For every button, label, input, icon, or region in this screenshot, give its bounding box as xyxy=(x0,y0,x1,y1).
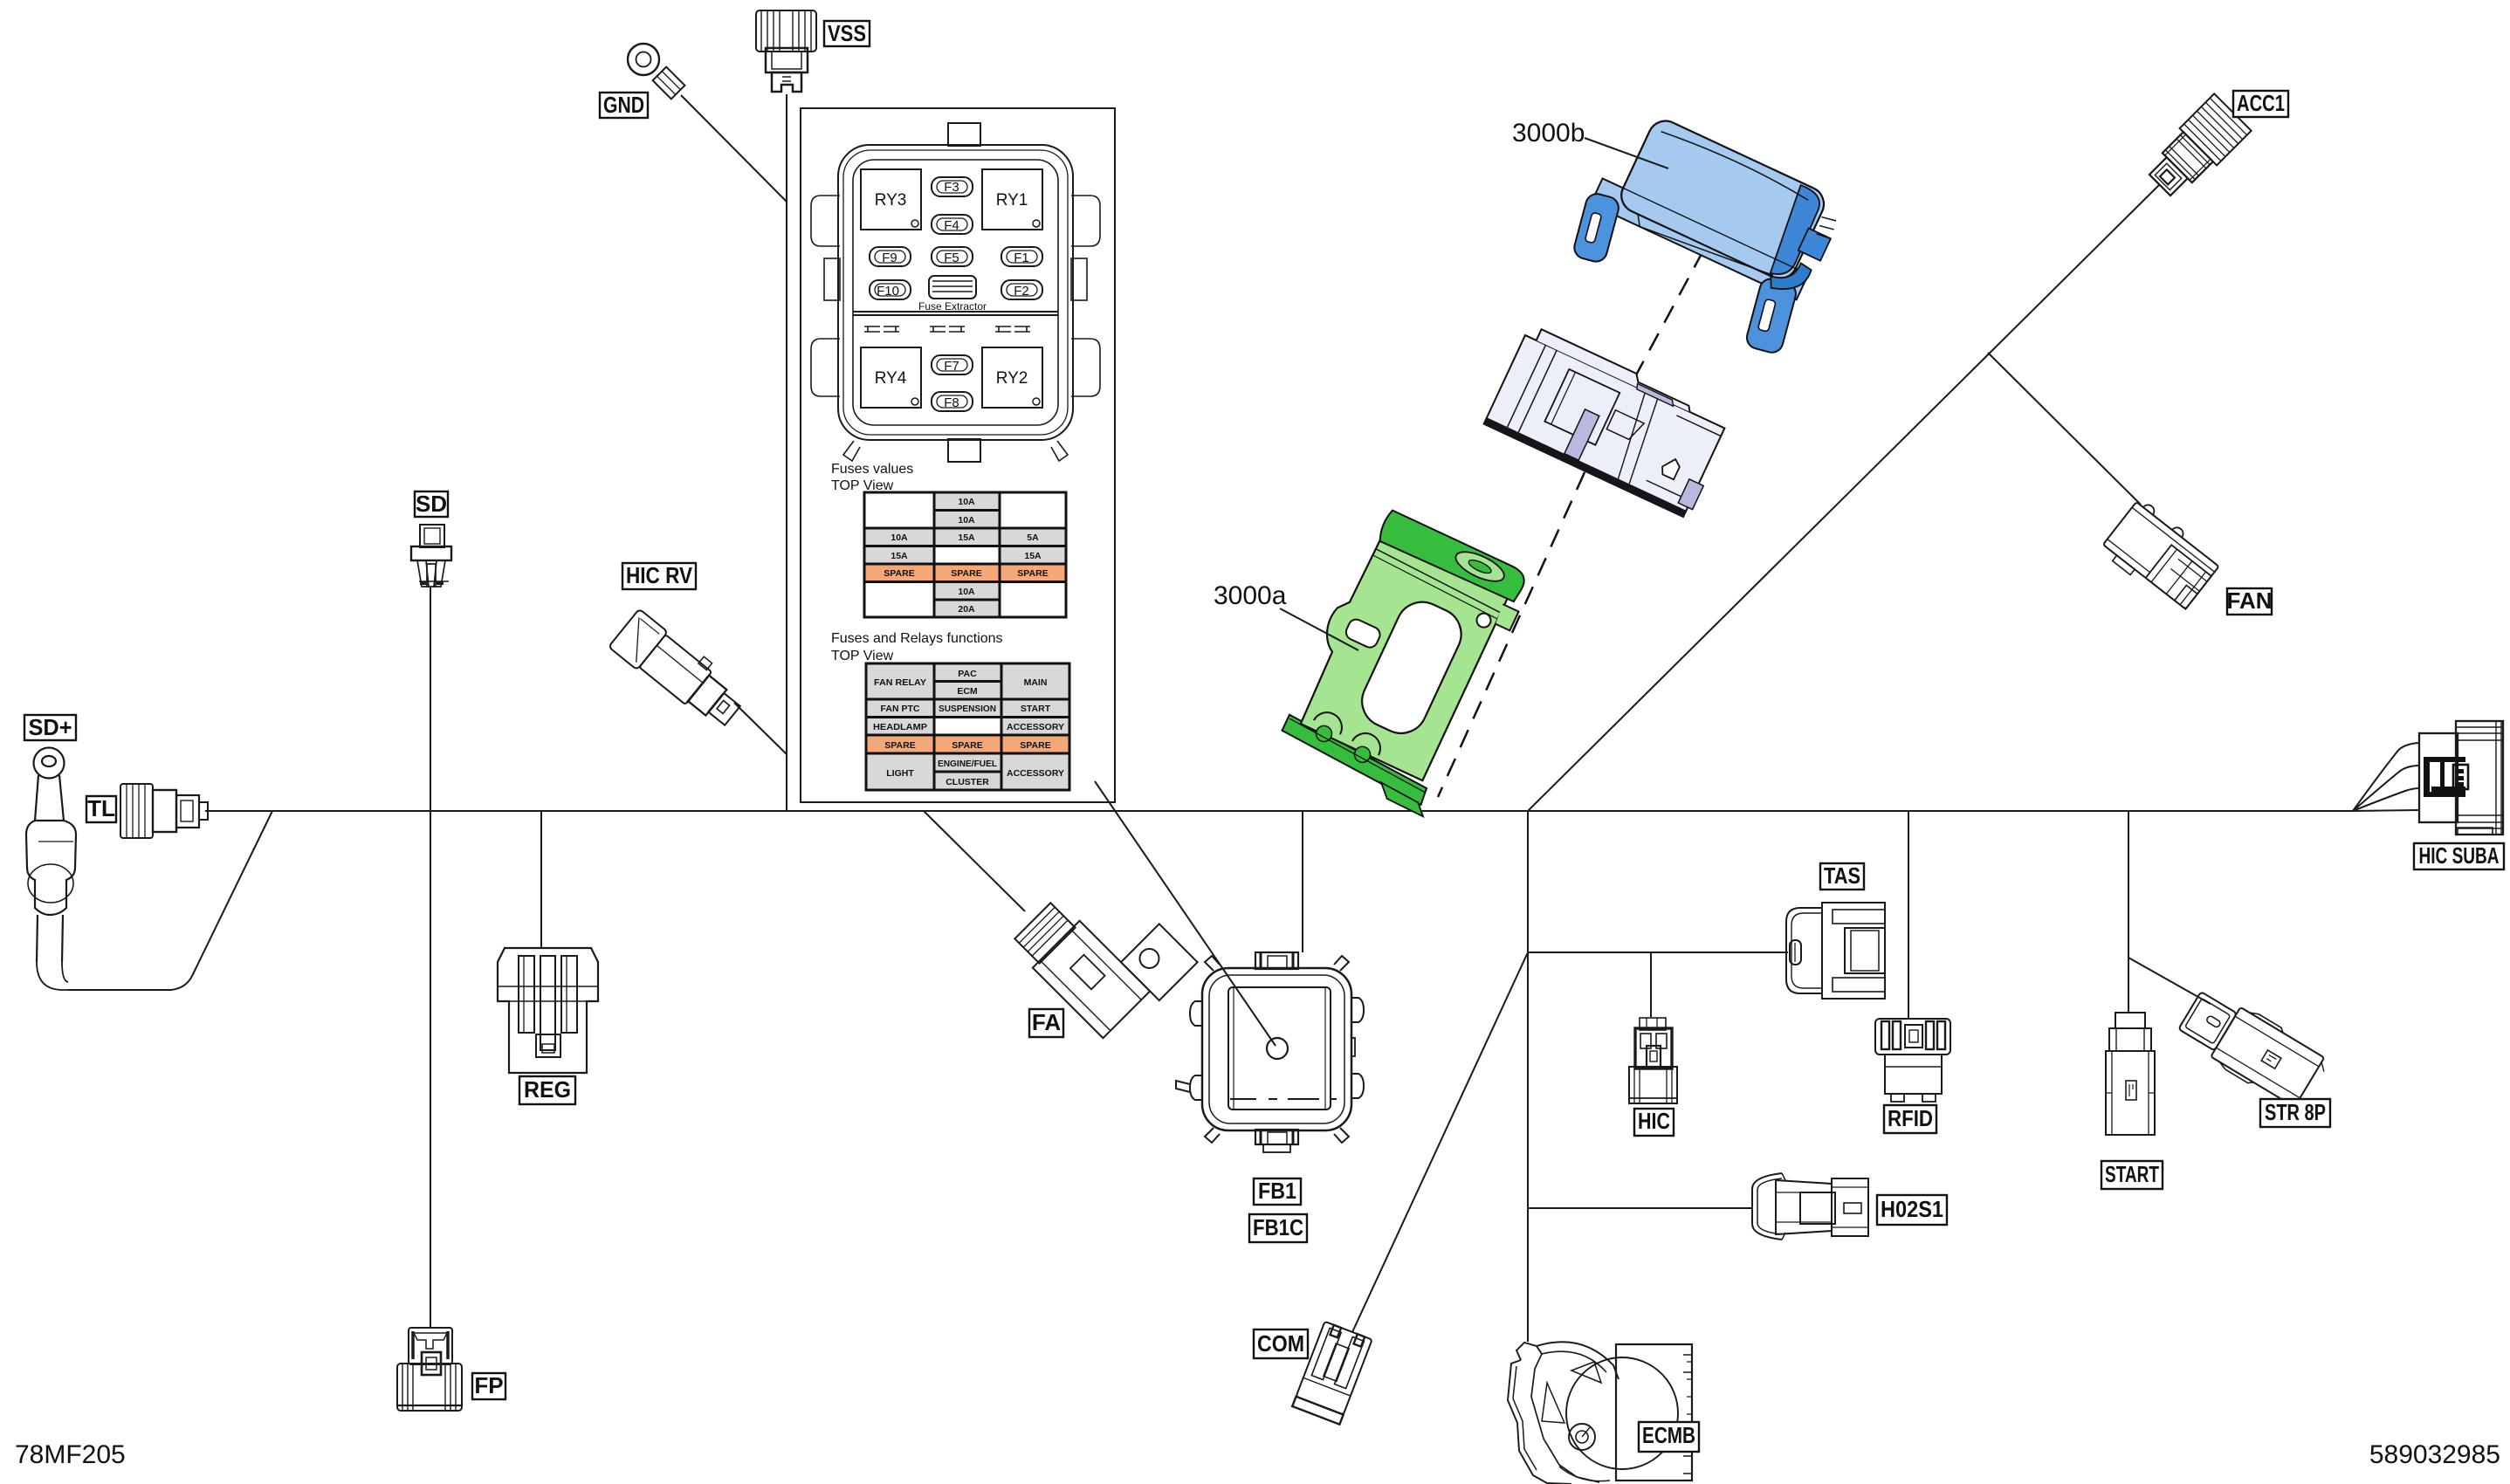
svg-text:SPARE: SPARE xyxy=(951,568,981,579)
svg-text:F8: F8 xyxy=(944,395,959,410)
svg-text:3000a: 3000a xyxy=(1214,581,1287,610)
svg-text:RFID: RFID xyxy=(1888,1105,1933,1131)
svg-text:STR 8P: STR 8P xyxy=(2265,1099,2326,1125)
svg-text:3000b: 3000b xyxy=(1512,119,1585,148)
svg-text:RY1: RY1 xyxy=(996,191,1028,210)
svg-text:TL: TL xyxy=(87,795,115,821)
svg-text:F1: F1 xyxy=(1014,251,1029,265)
svg-text:Fuses and Relays functions: Fuses and Relays functions xyxy=(831,631,1003,646)
svg-text:HEADLAMP: HEADLAMP xyxy=(873,722,927,732)
svg-text:ENGINE/FUEL: ENGINE/FUEL xyxy=(938,759,998,769)
svg-text:HIC SUBA: HIC SUBA xyxy=(2419,842,2500,869)
svg-text:ACCESSORY: ACCESSORY xyxy=(1007,768,1064,779)
svg-text:SPARE: SPARE xyxy=(1020,740,1050,751)
svg-text:START: START xyxy=(1021,704,1051,714)
svg-text:FAN PTC: FAN PTC xyxy=(881,704,920,714)
svg-text:5A: 5A xyxy=(1027,532,1039,543)
svg-text:15A: 15A xyxy=(1024,551,1042,561)
svg-text:15A: 15A xyxy=(891,551,908,561)
svg-text:F9: F9 xyxy=(882,251,897,265)
svg-text:START: START xyxy=(2105,1161,2159,1187)
svg-text:FB1C: FB1C xyxy=(1253,1214,1303,1240)
svg-text:F4: F4 xyxy=(944,218,959,233)
svg-text:FA: FA xyxy=(1032,1009,1061,1035)
svg-text:10A: 10A xyxy=(958,497,975,507)
svg-text:ACCESSORY: ACCESSORY xyxy=(1007,722,1064,732)
svg-text:Fuse Extractor: Fuse Extractor xyxy=(918,300,987,313)
svg-text:F7: F7 xyxy=(944,359,959,374)
svg-text:SPARE: SPARE xyxy=(884,568,914,579)
svg-text:15A: 15A xyxy=(958,532,975,543)
svg-text:589032985: 589032985 xyxy=(2369,1440,2500,1469)
svg-text:10A: 10A xyxy=(891,532,908,543)
svg-text:10A: 10A xyxy=(958,515,975,526)
svg-text:RY3: RY3 xyxy=(875,191,907,210)
svg-text:GND: GND xyxy=(603,92,644,118)
svg-text:SPARE: SPARE xyxy=(884,740,915,751)
svg-text:FAN: FAN xyxy=(2227,587,2273,614)
svg-text:TOP View: TOP View xyxy=(831,649,894,663)
svg-text:Fuses values: Fuses values xyxy=(831,462,913,477)
svg-text:ECM: ECM xyxy=(957,686,978,697)
svg-text:FB1: FB1 xyxy=(1258,1178,1296,1204)
svg-text:20A: 20A xyxy=(958,604,975,615)
svg-text:CLUSTER: CLUSTER xyxy=(946,777,989,787)
svg-text:SD: SD xyxy=(416,491,447,517)
svg-text:HIC RV: HIC RV xyxy=(626,562,693,588)
svg-text:VSS: VSS xyxy=(828,20,866,46)
svg-text:FP: FP xyxy=(474,1372,503,1398)
svg-text:ECMB: ECMB xyxy=(1642,1422,1695,1448)
svg-text:SD+: SD+ xyxy=(29,714,72,740)
svg-text:ACC1: ACC1 xyxy=(2237,90,2285,116)
svg-text:SPARE: SPARE xyxy=(1017,568,1048,579)
svg-text:FAN RELAY: FAN RELAY xyxy=(874,677,926,688)
svg-text:SPARE: SPARE xyxy=(952,740,982,751)
svg-text:TAS: TAS xyxy=(1824,862,1860,889)
svg-text:H02S1: H02S1 xyxy=(1881,1196,1943,1222)
svg-text:SUSPENSION: SUSPENSION xyxy=(939,704,996,714)
svg-text:LIGHT: LIGHT xyxy=(886,768,914,779)
svg-text:F2: F2 xyxy=(1014,284,1029,299)
svg-text:RY4: RY4 xyxy=(875,369,907,388)
svg-text:10A: 10A xyxy=(958,587,975,597)
svg-text:HIC: HIC xyxy=(1638,1108,1670,1134)
svg-text:COM: COM xyxy=(1257,1330,1304,1357)
svg-text:F10: F10 xyxy=(877,284,899,299)
svg-text:TOP View: TOP View xyxy=(831,478,894,493)
svg-text:REG: REG xyxy=(524,1076,571,1103)
svg-text:78MF205: 78MF205 xyxy=(15,1440,126,1469)
svg-text:MAIN: MAIN xyxy=(1024,677,1048,688)
svg-text:RY2: RY2 xyxy=(996,369,1028,388)
svg-text:PAC: PAC xyxy=(958,669,977,679)
svg-text:F3: F3 xyxy=(944,180,959,195)
svg-text:F5: F5 xyxy=(944,251,959,265)
